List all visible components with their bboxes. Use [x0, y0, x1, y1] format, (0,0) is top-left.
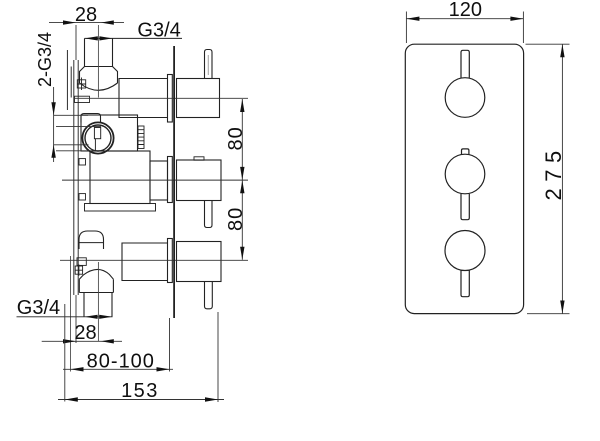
svg-text:28: 28: [74, 322, 96, 344]
svg-text:80-100: 80-100: [87, 350, 155, 372]
svg-text:2-G3/4: 2-G3/4: [35, 32, 55, 87]
svg-text:80: 80: [225, 126, 247, 150]
svg-text:120: 120: [449, 0, 482, 21]
svg-text:153: 153: [121, 380, 159, 402]
svg-text:275: 275: [541, 144, 566, 200]
svg-text:28: 28: [75, 4, 97, 26]
svg-text:80: 80: [225, 207, 247, 231]
svg-text:G3/4: G3/4: [17, 297, 60, 319]
svg-text:G3/4: G3/4: [137, 19, 180, 41]
